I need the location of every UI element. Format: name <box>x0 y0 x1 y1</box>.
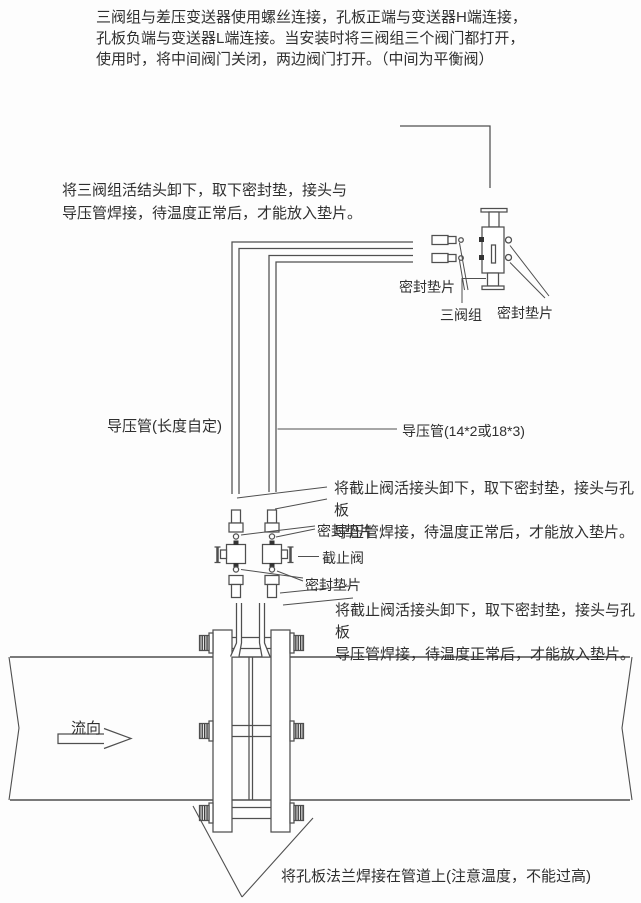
label-stop-valve: 截止阀 <box>322 548 364 568</box>
impulse-pipe-right <box>269 256 413 493</box>
stop-valve-left <box>215 510 246 598</box>
gaskets-right-of-manifold <box>506 237 512 261</box>
impulse-pipe-left <box>232 242 413 494</box>
stop-valve-right <box>263 510 294 598</box>
note-top-instructions: 三阀组与差压变送器使用螺丝连接，孔板正端与变送器H端连接， 孔板负端与变送器L端… <box>96 7 566 70</box>
orifice-flange-assembly <box>200 603 304 832</box>
note-weld: 将孔板法兰焊接在管道上(注意温度，不能过高) <box>281 865 641 886</box>
label-three-valve-manifold: 三阀组 <box>440 305 482 325</box>
union-fittings-left <box>432 236 463 263</box>
label-seal-gasket-top-left: 密封垫片 <box>399 277 455 297</box>
three-valve-manifold-unit <box>479 209 507 290</box>
label-impulse-pipe-custom: 导压管(长度自定) <box>107 415 222 436</box>
leaders-upper-note <box>237 487 327 509</box>
process-pipe <box>9 657 632 800</box>
note-stop-valve-upper: 将截止阀活接头卸下，取下密封垫，接头与孔板 导压管焊接，待温度正常后，才能放入垫… <box>334 478 639 544</box>
label-seal-gasket-valve-upper: 密封垫片 <box>317 521 373 541</box>
label-seal-gasket-valve-lower: 密封垫片 <box>305 575 361 595</box>
label-flow-direction: 流向 <box>71 717 101 738</box>
transmitter-connection-line <box>400 126 490 188</box>
installation-diagram: 三阀组与差压变送器使用螺丝连接，孔板正端与变送器H端连接， 孔板负端与变送器L端… <box>0 0 641 903</box>
label-seal-gasket-top-right: 密封垫片 <box>497 303 553 323</box>
note-manifold-union: 将三阀组活结头卸下，取下密封垫，接头与 导压管焊接，待温度正常后，才能放入垫片。 <box>62 179 362 225</box>
label-impulse-pipe-size: 导压管(14*2或18*3) <box>402 421 525 441</box>
note-stop-valve-lower: 将截止阀活接头卸下，取下密封垫，接头与孔板 导压管焊接，待温度正常后，才能放入垫… <box>335 600 640 666</box>
diagram-lineart <box>0 0 641 903</box>
